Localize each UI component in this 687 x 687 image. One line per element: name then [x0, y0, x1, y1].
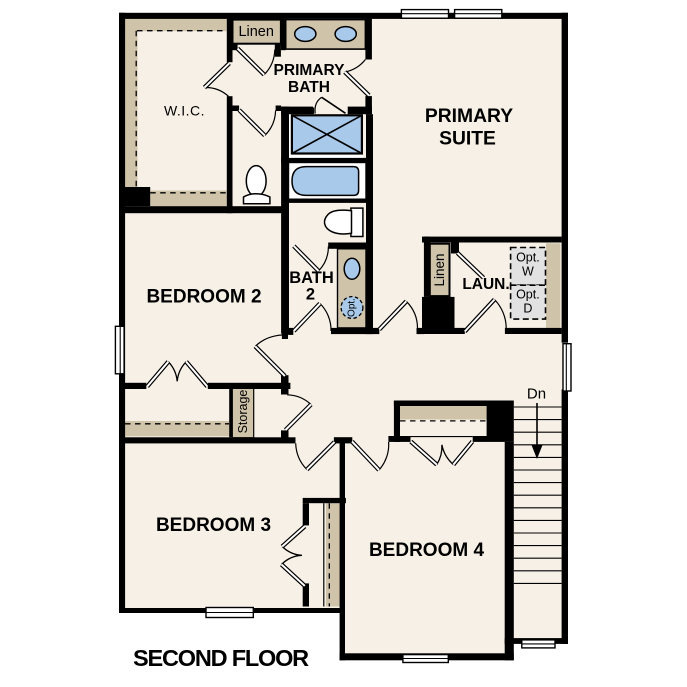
svg-text:W.I.C.: W.I.C.	[164, 103, 205, 119]
svg-text:BATH: BATH	[289, 269, 334, 287]
svg-text:BATH: BATH	[288, 79, 330, 96]
svg-text:Dn: Dn	[527, 385, 546, 402]
svg-text:BEDROOM 2: BEDROOM 2	[146, 287, 261, 308]
svg-text:Opt.: Opt.	[347, 298, 358, 317]
svg-text:Linen: Linen	[432, 253, 447, 286]
svg-text:Linen: Linen	[238, 24, 273, 40]
svg-text:D: D	[523, 302, 532, 316]
svg-text:PRIMARY: PRIMARY	[425, 106, 513, 127]
svg-text:SECOND FLOOR: SECOND FLOOR	[133, 645, 309, 671]
svg-text:LAUN.: LAUN.	[462, 276, 509, 293]
svg-text:W: W	[522, 265, 534, 279]
svg-text:2: 2	[306, 286, 315, 304]
svg-text:PRIMARY: PRIMARY	[274, 62, 346, 79]
svg-text:SUITE: SUITE	[439, 129, 496, 150]
svg-text:BEDROOM 4: BEDROOM 4	[369, 540, 485, 561]
svg-text:BEDROOM 3: BEDROOM 3	[156, 515, 271, 536]
svg-text:Opt.: Opt.	[516, 288, 540, 302]
svg-text:Storage: Storage	[236, 390, 250, 434]
svg-text:Opt.: Opt.	[516, 251, 540, 265]
